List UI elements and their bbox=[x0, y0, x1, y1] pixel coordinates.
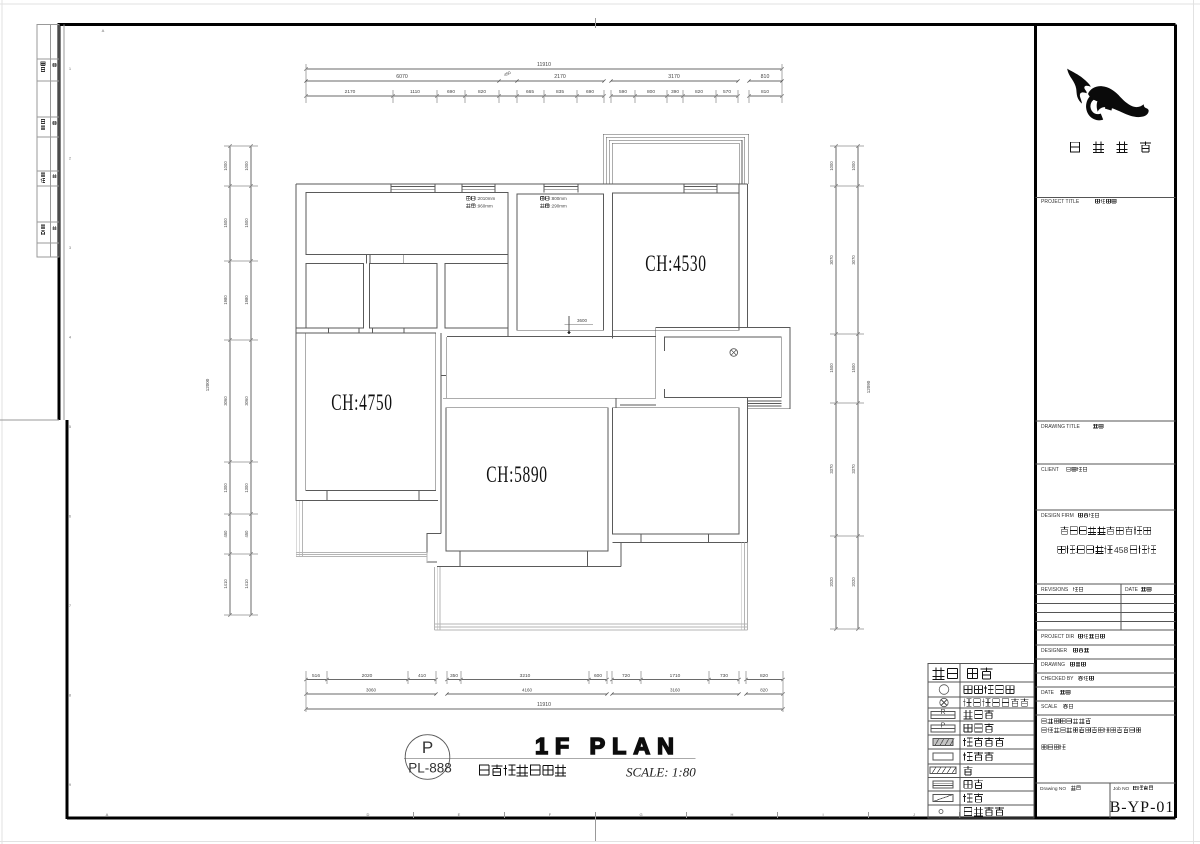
svg-text:600: 600 bbox=[594, 673, 602, 679]
svg-text:410: 410 bbox=[418, 673, 426, 679]
svg-text:CLIENT: CLIENT bbox=[1041, 467, 1059, 473]
svg-text:3060: 3060 bbox=[223, 396, 228, 406]
svg-text:450: 450 bbox=[223, 530, 228, 538]
svg-text::2010mm: :2010mm bbox=[477, 196, 496, 201]
svg-text:6: 6 bbox=[69, 515, 71, 519]
svg-text::800mm: :800mm bbox=[551, 196, 568, 201]
svg-text:SCALE: SCALE bbox=[1041, 704, 1058, 710]
svg-text:690: 690 bbox=[586, 89, 594, 95]
svg-text:1300: 1300 bbox=[223, 483, 228, 493]
svg-text:1: 1 bbox=[69, 67, 71, 71]
svg-text:A: A bbox=[102, 28, 105, 33]
svg-text:590: 590 bbox=[619, 89, 627, 95]
svg-text:1710: 1710 bbox=[670, 673, 681, 679]
svg-text:DATE: DATE bbox=[1125, 587, 1139, 593]
svg-text:CH:4530: CH:4530 bbox=[645, 251, 706, 277]
svg-text:2020: 2020 bbox=[362, 673, 373, 679]
svg-text:4160: 4160 bbox=[522, 688, 533, 693]
svg-text:E: E bbox=[458, 812, 461, 817]
svg-text:730: 730 bbox=[720, 673, 728, 679]
svg-text:3070: 3070 bbox=[851, 255, 856, 265]
svg-text:1500: 1500 bbox=[851, 363, 856, 373]
svg-text:3160: 3160 bbox=[670, 688, 681, 693]
svg-text:1000: 1000 bbox=[851, 161, 856, 171]
svg-text:8: 8 bbox=[69, 694, 71, 698]
svg-text:820: 820 bbox=[478, 89, 486, 95]
svg-text:458: 458 bbox=[1114, 545, 1128, 555]
svg-text::: : bbox=[1075, 546, 1077, 555]
svg-text:CH:4750: CH:4750 bbox=[331, 390, 392, 416]
svg-text:DATE: DATE bbox=[1041, 690, 1055, 696]
svg-text:CH:5890: CH:5890 bbox=[486, 462, 547, 488]
svg-text:A: A bbox=[106, 812, 109, 817]
svg-text:3370: 3370 bbox=[829, 464, 834, 474]
svg-text:Drawing NO: Drawing NO bbox=[1040, 786, 1066, 792]
svg-text:2020: 2020 bbox=[829, 577, 834, 587]
svg-text:1500: 1500 bbox=[244, 218, 249, 228]
svg-text:1000: 1000 bbox=[223, 161, 228, 171]
svg-text:2020: 2020 bbox=[851, 577, 856, 587]
svg-text:720: 720 bbox=[622, 673, 630, 679]
svg-text:7: 7 bbox=[69, 604, 71, 608]
svg-text:1500: 1500 bbox=[223, 218, 228, 228]
svg-text:DRAWING: DRAWING bbox=[1041, 662, 1065, 668]
svg-text:1980: 1980 bbox=[244, 295, 249, 305]
svg-text:3210: 3210 bbox=[520, 673, 531, 679]
svg-text:PL-888: PL-888 bbox=[408, 761, 452, 776]
svg-text:5: 5 bbox=[69, 425, 71, 429]
svg-text:3060: 3060 bbox=[244, 396, 249, 406]
svg-text:3060: 3060 bbox=[366, 688, 377, 693]
svg-text:665: 665 bbox=[526, 89, 534, 95]
svg-text:REVISIONS: REVISIONS bbox=[1041, 587, 1069, 593]
svg-text:390: 390 bbox=[671, 89, 679, 95]
svg-text::290mm: :290mm bbox=[551, 204, 568, 209]
svg-text:690: 690 bbox=[447, 89, 455, 95]
svg-text:800: 800 bbox=[647, 89, 655, 95]
svg-text:1500: 1500 bbox=[829, 363, 834, 373]
svg-text:810: 810 bbox=[761, 89, 769, 95]
svg-text:570: 570 bbox=[723, 89, 731, 95]
svg-text:516: 516 bbox=[312, 673, 320, 679]
svg-text:PROJECT DIR: PROJECT DIR bbox=[1041, 634, 1075, 640]
svg-text:3600: 3600 bbox=[577, 318, 588, 323]
svg-text:R: R bbox=[940, 709, 945, 716]
svg-text:4: 4 bbox=[69, 336, 71, 340]
svg-text:P: P bbox=[422, 738, 433, 757]
svg-text:1980: 1980 bbox=[223, 295, 228, 305]
svg-text:2170: 2170 bbox=[554, 74, 566, 80]
svg-text:3070: 3070 bbox=[829, 255, 834, 265]
svg-text:B-YP-01: B-YP-01 bbox=[1110, 799, 1175, 816]
svg-text:1410: 1410 bbox=[223, 579, 228, 589]
svg-text:12090: 12090 bbox=[866, 380, 871, 393]
svg-text:350: 350 bbox=[450, 673, 458, 679]
svg-text:835: 835 bbox=[556, 89, 564, 95]
svg-text:I: I bbox=[822, 812, 823, 817]
svg-text:1410: 1410 bbox=[244, 579, 249, 589]
svg-text:820: 820 bbox=[760, 673, 768, 679]
svg-text:J: J bbox=[913, 812, 915, 817]
svg-text:DRAWING TITLE: DRAWING TITLE bbox=[1041, 424, 1081, 430]
svg-text:DESIGNER: DESIGNER bbox=[1041, 648, 1068, 654]
svg-text:1000: 1000 bbox=[829, 161, 834, 171]
svg-text:1110: 1110 bbox=[410, 89, 420, 95]
svg-text::960mm: :960mm bbox=[477, 204, 494, 209]
svg-text:G: G bbox=[639, 812, 642, 817]
svg-text:H: H bbox=[731, 812, 734, 817]
svg-text:3370: 3370 bbox=[851, 464, 856, 474]
svg-text:SCALE: 1:80: SCALE: 1:80 bbox=[626, 765, 696, 780]
svg-text:9: 9 bbox=[69, 783, 71, 787]
svg-text:6070: 6070 bbox=[396, 74, 408, 80]
svg-text:1300: 1300 bbox=[244, 483, 249, 493]
svg-text:12000: 12000 bbox=[205, 378, 210, 391]
svg-text:3170: 3170 bbox=[668, 74, 680, 80]
svg-text:D: D bbox=[367, 812, 370, 817]
svg-text:P: P bbox=[941, 723, 946, 730]
svg-text:Job NO: Job NO bbox=[1113, 786, 1130, 792]
svg-text:11910: 11910 bbox=[537, 62, 551, 68]
svg-text:3: 3 bbox=[69, 246, 71, 250]
svg-text:450: 450 bbox=[244, 530, 249, 538]
svg-text:1F PLAN: 1F PLAN bbox=[535, 733, 681, 759]
svg-text:2: 2 bbox=[69, 157, 71, 161]
svg-text:11910: 11910 bbox=[537, 702, 551, 708]
svg-text:1000: 1000 bbox=[244, 161, 249, 171]
svg-text:2170: 2170 bbox=[345, 89, 356, 95]
svg-text:PROJECT TITLE: PROJECT TITLE bbox=[1041, 199, 1080, 205]
svg-text:820: 820 bbox=[760, 688, 768, 693]
svg-text:CHECKED BY: CHECKED BY bbox=[1041, 676, 1074, 682]
svg-text:810: 810 bbox=[761, 74, 770, 80]
svg-text:DESIGN FIRM: DESIGN FIRM bbox=[1041, 513, 1074, 519]
svg-text:820: 820 bbox=[695, 89, 703, 95]
